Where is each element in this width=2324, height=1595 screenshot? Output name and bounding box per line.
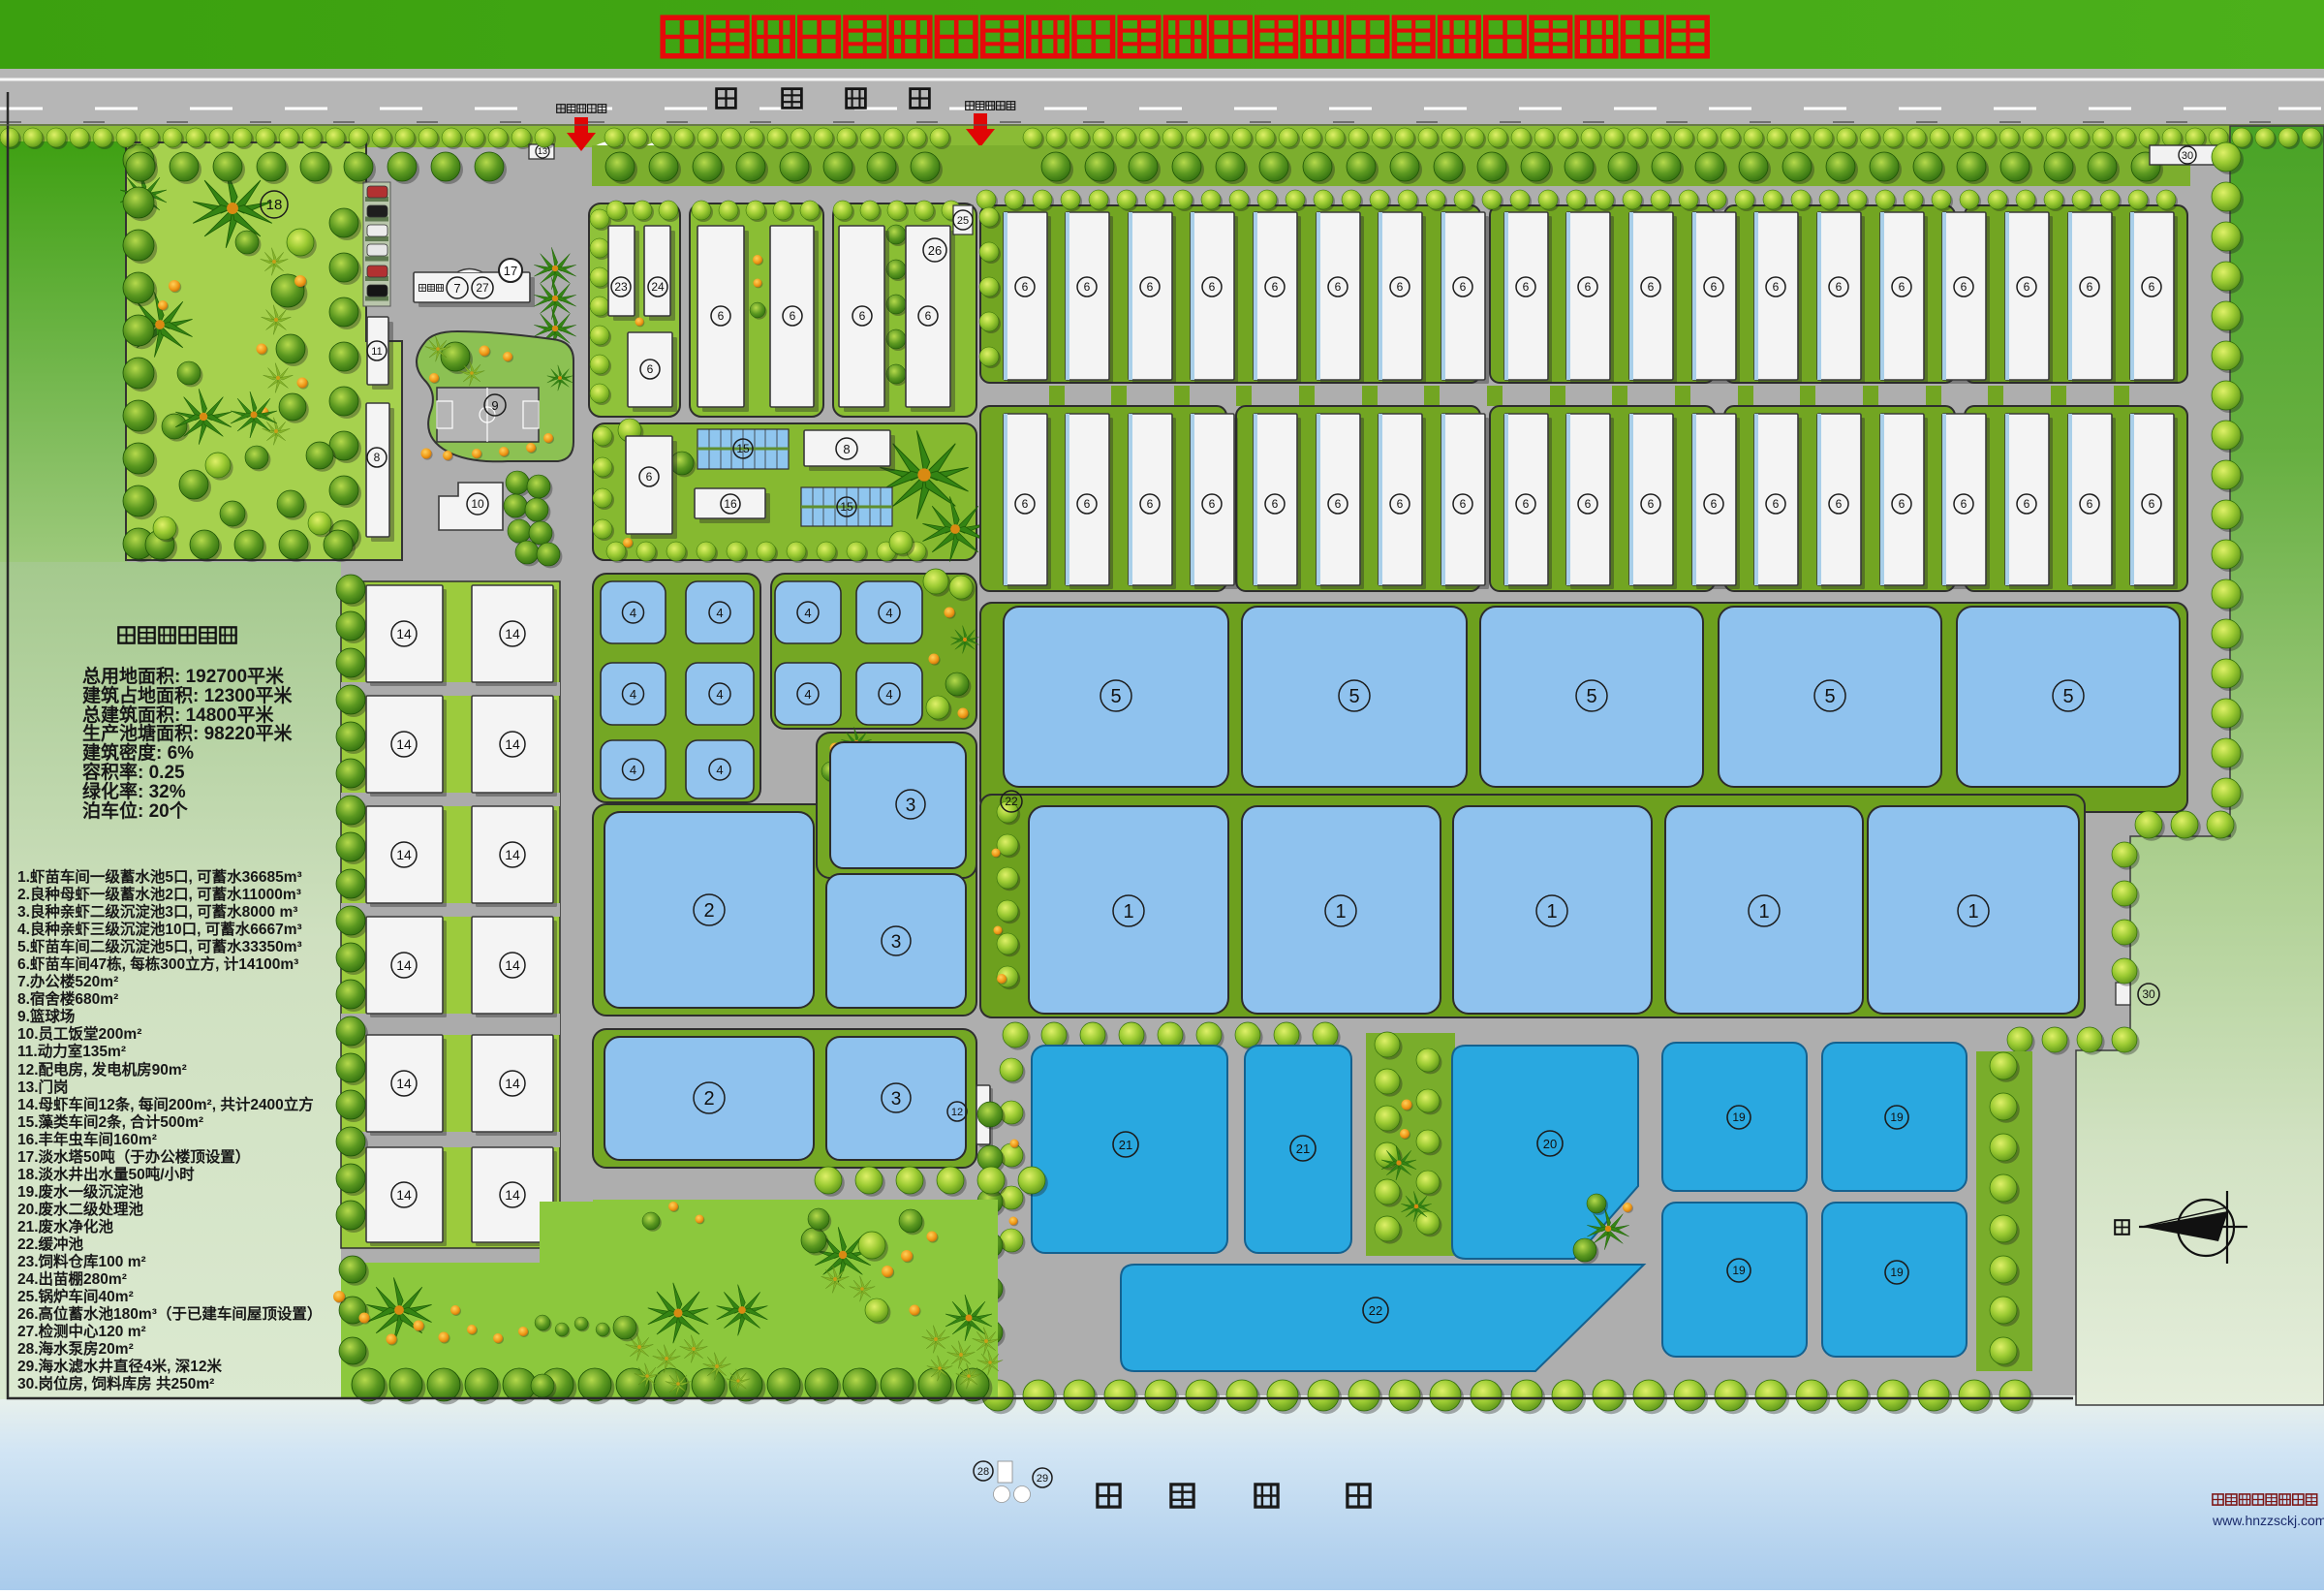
svg-text:11.动力室135m²: 11.动力室135m² [17,1042,126,1060]
svg-text:6: 6 [1836,497,1843,511]
svg-text:4: 4 [716,687,723,702]
svg-text:6: 6 [1836,280,1843,294]
svg-text:21: 21 [1119,1138,1132,1152]
svg-text:14: 14 [505,736,520,752]
svg-text:建筑密度: 6%: 建筑密度: 6% [82,741,194,764]
svg-text:4: 4 [630,763,636,777]
svg-text:1.虾苗车间一级蓄水池5口, 可蓄水36685m³: 1.虾苗车间一级蓄水池5口, 可蓄水36685m³ [17,867,302,886]
svg-text:30: 30 [2182,150,2193,162]
svg-text:6: 6 [1335,280,1342,294]
svg-text:1: 1 [1968,901,1978,923]
svg-text:6: 6 [925,309,932,323]
svg-text:6: 6 [1335,497,1342,511]
svg-text:6: 6 [859,309,866,323]
svg-text:3: 3 [891,932,902,953]
svg-text:5: 5 [1348,686,1359,707]
svg-text:11: 11 [371,346,382,358]
svg-text:14: 14 [505,1076,520,1091]
svg-text:6: 6 [1773,280,1780,294]
svg-text:15.藻类车间2条, 合计500m²: 15.藻类车间2条, 合计500m² [17,1112,203,1131]
svg-text:29: 29 [1037,1473,1048,1485]
svg-text:23: 23 [614,280,628,294]
svg-text:2: 2 [703,900,714,922]
svg-text:1: 1 [1123,901,1133,923]
svg-text:6: 6 [1523,280,1530,294]
svg-text:27: 27 [476,281,489,295]
svg-text:23.饲料仓库100 m²: 23.饲料仓库100 m² [17,1252,146,1270]
svg-text:容积率: 0.25: 容积率: 0.25 [82,761,185,783]
svg-text:4: 4 [716,606,723,620]
svg-text:10.员工饭堂200m²: 10.员工饭堂200m² [17,1024,141,1043]
svg-text:24.出苗棚280m²: 24.出苗棚280m² [17,1269,127,1288]
svg-text:6: 6 [1523,497,1530,511]
svg-text:13.门岗: 13.门岗 [17,1078,69,1096]
svg-text:6: 6 [1147,497,1154,511]
svg-text:6: 6 [1084,280,1091,294]
svg-text:6: 6 [1585,280,1592,294]
svg-text:12.配电房, 发电机房90m²: 12.配电房, 发电机房90m² [17,1060,187,1079]
svg-text:14: 14 [396,736,412,752]
svg-text:5.虾苗车间二级沉淀池5口, 可蓄水33350m³: 5.虾苗车间二级沉淀池5口, 可蓄水33350m³ [17,937,302,955]
svg-text:4: 4 [804,687,811,702]
svg-text:12: 12 [951,1107,963,1118]
svg-text:8: 8 [843,442,850,456]
svg-text:6: 6 [1022,497,1029,511]
svg-text:6: 6 [1397,280,1404,294]
svg-text:17.淡水塔50吨（于办公楼顶设置）: 17.淡水塔50吨（于办公楼顶设置） [17,1147,250,1166]
svg-text:22.缓冲池: 22.缓冲池 [17,1235,84,1253]
svg-text:绿化率: 32%: 绿化率: 32% [82,780,186,802]
svg-text:6: 6 [2149,280,2155,294]
svg-text:6: 6 [1648,497,1655,511]
svg-text:24: 24 [651,280,665,294]
svg-text:10: 10 [471,497,484,511]
svg-text:6: 6 [790,309,796,323]
svg-text:6: 6 [1460,280,1467,294]
svg-text:6: 6 [1272,497,1279,511]
svg-text:4: 4 [630,606,636,620]
svg-text:14: 14 [505,957,520,973]
svg-text:6: 6 [1899,497,1906,511]
svg-text:27.检测中心120 m²: 27.检测中心120 m² [17,1322,146,1340]
svg-text:3: 3 [891,1089,902,1110]
svg-text:6: 6 [2024,280,2030,294]
svg-text:4: 4 [804,606,811,620]
svg-text:6.虾苗车间47栋, 每栋300立方, 计14100m³: 6.虾苗车间47栋, 每栋300立方, 计14100m³ [17,954,298,973]
svg-text:6: 6 [1899,280,1906,294]
svg-text:14: 14 [396,847,412,862]
svg-text:21.废水净化池: 21.废水净化池 [17,1217,114,1235]
svg-text:22: 22 [1005,795,1018,808]
svg-text:2: 2 [703,1088,714,1110]
svg-text:6: 6 [1711,280,1718,294]
svg-text:6: 6 [2024,497,2030,511]
svg-text:6: 6 [2149,497,2155,511]
svg-text:7: 7 [453,281,460,296]
svg-text:1: 1 [1335,901,1346,923]
svg-text:14: 14 [505,847,520,862]
svg-text:5: 5 [2062,686,2073,707]
svg-text:29.海水滤水井直径4米, 深12米: 29.海水滤水井直径4米, 深12米 [17,1357,223,1375]
svg-text:26: 26 [928,243,942,258]
svg-text:6: 6 [1961,497,1968,511]
svg-text:30: 30 [2142,987,2155,1001]
svg-text:28.海水泵房20m²: 28.海水泵房20m² [17,1339,134,1358]
svg-text:21: 21 [1296,1142,1310,1156]
svg-text:4.良种亲虾三级沉淀池10口, 可蓄水6667m³: 4.良种亲虾三级沉淀池10口, 可蓄水6667m³ [17,920,302,938]
svg-text:7.办公楼520m²: 7.办公楼520m² [17,972,118,990]
svg-text:6: 6 [646,470,653,484]
svg-text:18: 18 [266,197,283,213]
svg-text:6: 6 [1209,497,1216,511]
svg-text:6: 6 [1397,497,1404,511]
svg-text:8.宿舍楼680m²: 8.宿舍楼680m² [17,989,118,1008]
svg-text:1: 1 [1758,901,1769,923]
svg-text:20.废水二级处理池: 20.废水二级处理池 [17,1200,144,1218]
svg-text:生产池塘面积: 98220平米: 生产池塘面积: 98220平米 [82,722,293,744]
svg-text:19: 19 [1732,1110,1746,1124]
svg-text:6: 6 [2087,497,2093,511]
svg-text:14: 14 [396,957,412,973]
svg-text:3: 3 [906,796,916,816]
svg-text:4: 4 [885,687,892,702]
svg-text:14: 14 [505,626,520,641]
svg-text:4: 4 [716,763,723,777]
svg-text:3.良种亲虾二级沉淀池3口, 可蓄水8000 m³: 3.良种亲虾二级沉淀池3口, 可蓄水8000 m³ [17,902,297,921]
svg-text:1: 1 [1546,901,1557,923]
svg-text:5: 5 [1110,686,1121,707]
svg-text:6: 6 [1209,280,1216,294]
svg-text:5: 5 [1586,686,1596,707]
svg-text:22: 22 [1369,1303,1382,1318]
svg-text:6: 6 [1961,280,1968,294]
svg-text:6: 6 [1460,497,1467,511]
svg-text:4: 4 [630,687,636,702]
svg-text:14: 14 [396,1076,412,1091]
svg-text:14: 14 [396,1187,412,1203]
svg-text:6: 6 [1147,280,1154,294]
svg-text:30.岗位房, 饲料库房 共250m²: 30.岗位房, 饲料库房 共250m² [17,1374,214,1392]
svg-text:6: 6 [1022,280,1029,294]
svg-text:19.废水一级沉淀池: 19.废水一级沉淀池 [17,1182,144,1201]
svg-text:6: 6 [1773,497,1780,511]
svg-text:9.篮球场: 9.篮球场 [17,1007,75,1025]
svg-text:16.丰年虫车间160m²: 16.丰年虫车间160m² [17,1130,157,1148]
svg-text:6: 6 [1272,280,1279,294]
svg-text:14.母虾车间12条, 每间200m², 共计2400立方: 14.母虾车间12条, 每间200m², 共计2400立方 [17,1095,314,1113]
svg-text:6: 6 [647,362,654,376]
svg-text:26.高位蓄水池180m³（于已建车间屋顶设置）: 26.高位蓄水池180m³（于已建车间屋顶设置） [17,1304,322,1323]
svg-text:6: 6 [1585,497,1592,511]
svg-text:28: 28 [977,1466,989,1478]
svg-text:19: 19 [1732,1264,1746,1277]
svg-text:14: 14 [505,1187,520,1203]
svg-text:总建筑面积: 14800平米: 总建筑面积: 14800平米 [82,704,274,726]
svg-text:25: 25 [957,215,969,227]
svg-text:15: 15 [840,500,853,514]
svg-text:6: 6 [1648,280,1655,294]
svg-text:14: 14 [396,626,412,641]
svg-text:9: 9 [491,398,498,413]
svg-text:17: 17 [504,264,517,278]
svg-text:www.hnzzsckj.com: www.hnzzsckj.com [2212,1513,2324,1528]
svg-text:泊车位: 20个: 泊车位: 20个 [82,799,189,822]
svg-text:19: 19 [1890,1110,1904,1124]
svg-text:19: 19 [1890,1266,1904,1279]
svg-text:2.良种母虾一级蓄水池2口, 可蓄水11000m³: 2.良种母虾一级蓄水池2口, 可蓄水11000m³ [17,885,301,903]
svg-text:6: 6 [1711,497,1718,511]
svg-text:15: 15 [736,442,750,455]
svg-text:8: 8 [374,451,381,464]
svg-text:建筑占地面积: 12300平米: 建筑占地面积: 12300平米 [82,684,293,706]
svg-text:18.淡水井出水量50吨/小时: 18.淡水井出水量50吨/小时 [17,1165,195,1183]
svg-text:6: 6 [718,309,725,323]
svg-text:4: 4 [885,606,892,620]
svg-text:6: 6 [2087,280,2093,294]
svg-text:5: 5 [1824,686,1835,707]
svg-text:16: 16 [724,497,737,511]
svg-text:6: 6 [1084,497,1091,511]
svg-text:25.锅炉车间40m²: 25.锅炉车间40m² [17,1287,134,1305]
svg-text:20: 20 [1543,1137,1557,1151]
svg-text:总用地面积: 192700平米: 总用地面积: 192700平米 [82,665,285,687]
